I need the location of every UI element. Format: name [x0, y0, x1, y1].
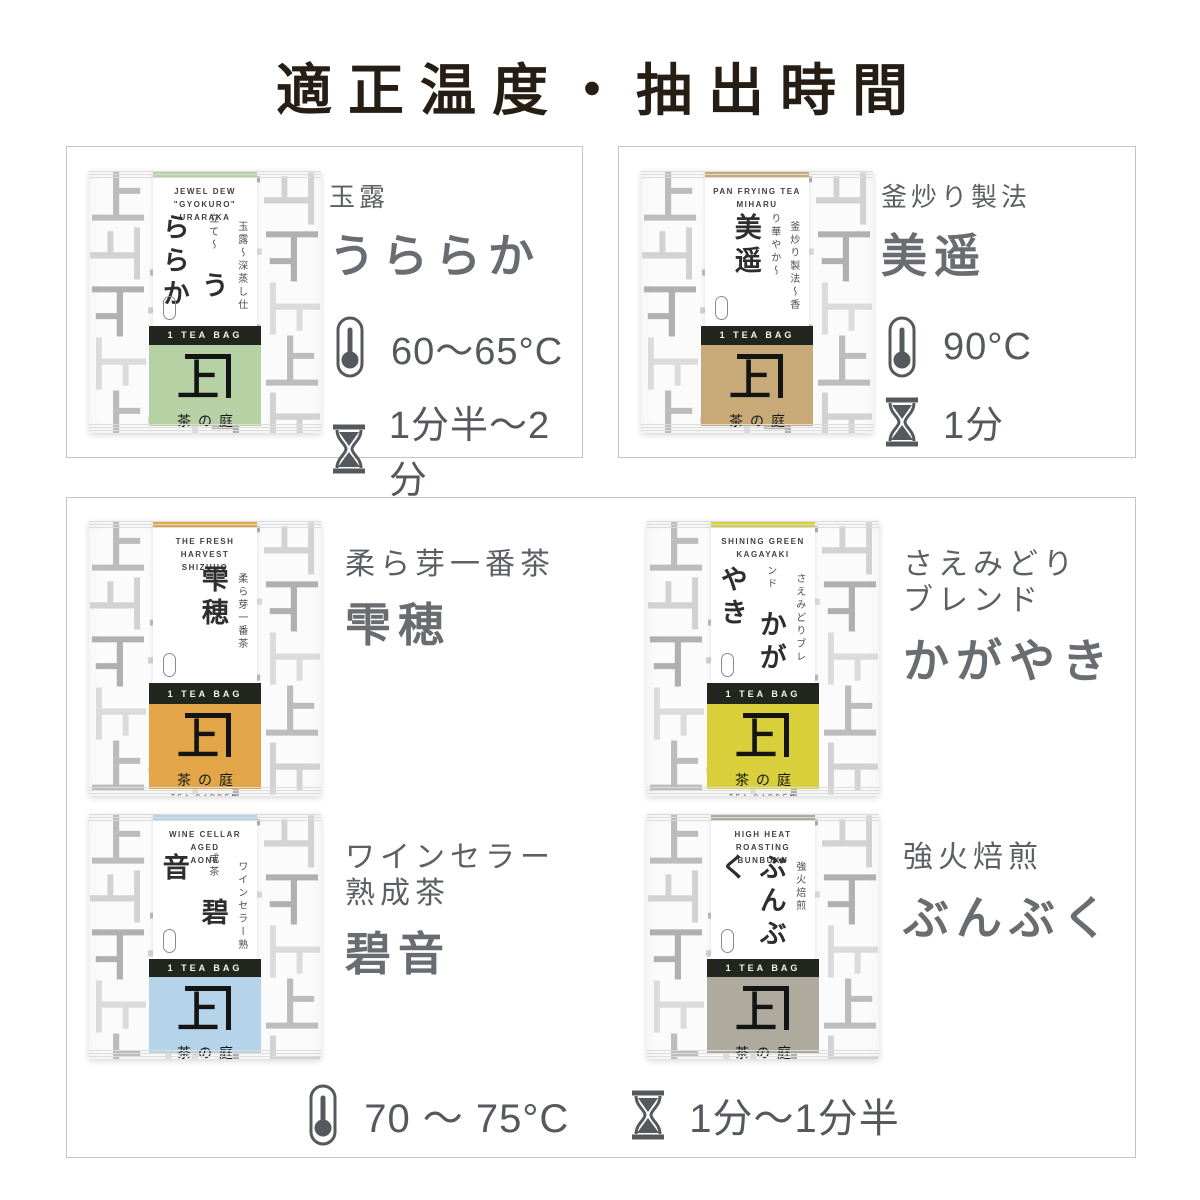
tea-package-uraraka: 上上上上上上上上上上上上上上上上上上上上 JEWEL DEW "GYOKURO"…	[89, 171, 321, 433]
seal-stamp	[721, 929, 734, 953]
temperature-spec: 90°C	[881, 316, 1131, 378]
package-english-title: SHINING GREEN KAGAYAKI	[711, 536, 815, 562]
tea-package-kagayaki: 上上上上上上上上上上上上上上上上上上上上 SHINING GREEN KAGAY…	[647, 521, 879, 796]
seal-stamp	[715, 296, 728, 320]
tea-name: うららか	[329, 220, 579, 286]
time-spec: 1分半〜2分	[329, 394, 579, 504]
temperature-spec: 60〜65°C	[329, 316, 579, 378]
time-value: 1分	[943, 394, 1004, 449]
time-value: 1分半〜2分	[389, 394, 579, 504]
brand-logo-icon: 上	[177, 986, 233, 1036]
tea-package-shizuho: 上上上上上上上上上上上上上上上上上上上上 THE FRESH HARVEST S…	[89, 521, 321, 796]
card-bunbuku: 上上上上上上上上上上上上上上上上上上上上 HIGH HEAT ROASTING …	[647, 814, 1152, 1059]
hourglass-icon	[329, 424, 369, 474]
tea-name: 雫穂	[345, 589, 595, 655]
tea-type-label: さえみどり ブレンド	[903, 547, 1153, 619]
package-vertical-text: 強火焙煎 ぶんぶく	[721, 853, 808, 953]
tea-bag-count-label: 1 TEA BAG	[149, 959, 261, 977]
infographic-page: 適正温度・抽出時間 上上上上上上上上上上上上上上上上上上上上 JEWEL DEW…	[0, 0, 1200, 1200]
seal-stamp	[163, 653, 176, 677]
accent-band	[711, 814, 815, 820]
accent-band	[153, 521, 257, 527]
card-kagayaki: 上上上上上上上上上上上上上上上上上上上上 SHINING GREEN KAGAY…	[647, 521, 1152, 796]
accent-band	[711, 521, 815, 527]
tea-type-label: 釜炒り製法	[881, 183, 1131, 214]
package-vertical-text: 釜炒り製法〜香り華やか〜 美遥	[715, 213, 802, 320]
shared-spec-row: 70 〜 75°C 1分〜1分半	[67, 1084, 1135, 1146]
temperature-spec: 70 〜 75°C	[302, 1084, 569, 1146]
brand-logo-icon: 上	[735, 713, 791, 763]
tea-type-label: ワインセラー 熟成茶	[345, 840, 595, 912]
tea-name: ぶんぶく	[903, 882, 1153, 948]
package-label-strip: HIGH HEAT ROASTING BUNBUKU 強火焙煎 ぶんぶく	[711, 814, 815, 959]
tea-bag-count-label: 1 TEA BAG	[701, 326, 813, 346]
tea-name: 美遥	[881, 220, 1131, 286]
brand-logo-block: 上 茶の庭 TEA GARDEN	[149, 345, 261, 426]
brand-name: 茶の庭	[149, 1043, 261, 1059]
tea-bag-count-label: 1 TEA BAG	[707, 683, 819, 704]
brand-logo-icon: 上	[177, 713, 233, 763]
card-shizuho: 上上上上上上上上上上上上上上上上上上上上 THE FRESH HARVEST S…	[89, 521, 594, 796]
hourglass-icon	[881, 397, 923, 447]
card-info: さえみどり ブレンド かがやき	[903, 521, 1153, 691]
seal-stamp	[721, 653, 734, 677]
card-uraraka: 上上上上上上上上上上上上上上上上上上上上 JEWEL DEW "GYOKURO"…	[66, 146, 583, 458]
tea-package-bunbuku: 上上上上上上上上上上上上上上上上上上上上 HIGH HEAT ROASTING …	[647, 814, 879, 1059]
tea-name: 碧音	[345, 918, 595, 984]
tea-bag-count-label: 1 TEA BAG	[149, 326, 261, 346]
brand-subtitle: TEA GARDEN	[149, 794, 261, 796]
thermometer-icon	[881, 316, 923, 378]
package-label-strip: SHINING GREEN KAGAYAKI さえみどりブレンド かがやき	[711, 521, 815, 683]
card-info: 強火焙煎 ぶんぶく	[903, 814, 1153, 948]
brand-logo-block: 上 茶の庭 TEA GARDEN	[149, 977, 261, 1053]
thermometer-icon	[302, 1084, 344, 1146]
brand-logo-icon: 上	[735, 986, 791, 1036]
brand-logo-block: 上 茶の庭 TEA GARDEN	[701, 345, 813, 426]
temperature-value: 90°C	[943, 326, 1032, 369]
brand-name: 茶の庭	[149, 770, 261, 790]
tea-type-label: 玉露	[329, 183, 579, 214]
package-label-strip: WINE CELLAR AGED AONE ワインセラー熟成茶 碧音	[153, 814, 257, 959]
brand-logo-block: 上 茶の庭 TEA GARDEN	[149, 704, 261, 789]
accent-band	[153, 814, 257, 820]
card-group-bottom: 上上上上上上上上上上上上上上上上上上上上 THE FRESH HARVEST S…	[66, 497, 1136, 1158]
package-vertical-text: 柔ら芽一番茶 雫穂	[163, 565, 250, 677]
package-vertical-text: 玉露〜深蒸し仕立て〜 うららか	[163, 213, 250, 320]
card-aone: 上上上上上上上上上上上上上上上上上上上上 WINE CELLAR AGED AO…	[89, 814, 594, 1059]
brand-logo-icon: 上	[177, 354, 233, 404]
hourglass-icon	[627, 1090, 669, 1140]
package-label-strip: PAN FRYING TEA MIHARU 釜炒り製法〜香り華やか〜 美遥	[705, 171, 809, 326]
seal-stamp	[163, 929, 176, 953]
brand-logo-icon: 上	[729, 354, 785, 404]
time-spec: 1分	[881, 394, 1131, 449]
package-english-title: PAN FRYING TEA MIHARU	[705, 186, 809, 212]
package-label-strip: JEWEL DEW "GYOKURO" URARAKA 玉露〜深蒸し仕立て〜 う…	[153, 171, 257, 326]
tea-type-label: 強火焙煎	[903, 840, 1153, 876]
tea-package-miharu: 上上上上上上上上上上上上上上上上上上上上 PAN FRYING TEA MIHA…	[641, 171, 873, 433]
accent-band	[705, 171, 809, 177]
tea-bag-count-label: 1 TEA BAG	[149, 683, 261, 704]
brand-subtitle: TEA GARDEN	[707, 794, 819, 796]
temperature-value: 60〜65°C	[391, 320, 563, 375]
package-label-strip: THE FRESH HARVEST SHIZUHO 柔ら芽一番茶 雫穂	[153, 521, 257, 683]
card-info: 釜炒り製法 美遥 90°C	[881, 183, 1131, 449]
card-info: 柔ら芽一番茶 雫穂	[345, 521, 595, 655]
tea-name: かがやき	[903, 625, 1153, 691]
page-title: 適正温度・抽出時間	[0, 46, 1200, 127]
tea-package-aone: 上上上上上上上上上上上上上上上上上上上上 WINE CELLAR AGED AO…	[89, 814, 321, 1059]
brand-logo-block: 上 茶の庭 TEA GARDEN	[707, 977, 819, 1053]
card-info: ワインセラー 熟成茶 碧音	[345, 814, 595, 984]
tea-type-label: 柔ら芽一番茶	[345, 547, 595, 583]
brand-name: 茶の庭	[707, 1043, 819, 1059]
brand-logo-block: 上 茶の庭 TEA GARDEN	[707, 704, 819, 789]
time-spec: 1分〜1分半	[627, 1086, 900, 1144]
time-value: 1分〜1分半	[689, 1086, 900, 1144]
package-vertical-text: さえみどりブレンド かがやき	[721, 565, 808, 677]
package-vertical-text: ワインセラー熟成茶 碧音	[163, 853, 250, 953]
brand-name: 茶の庭	[149, 411, 261, 431]
thermometer-icon	[329, 316, 371, 378]
temperature-value: 70 〜 75°C	[364, 1086, 569, 1144]
card-miharu: 上上上上上上上上上上上上上上上上上上上上 PAN FRYING TEA MIHA…	[618, 146, 1136, 458]
tea-bag-count-label: 1 TEA BAG	[707, 959, 819, 977]
seal-stamp	[163, 296, 176, 320]
card-info: 玉露 うららか 60〜65°C	[329, 183, 579, 504]
brand-name: 茶の庭	[707, 770, 819, 790]
brand-name: 茶の庭	[701, 411, 813, 431]
accent-band	[153, 171, 257, 177]
